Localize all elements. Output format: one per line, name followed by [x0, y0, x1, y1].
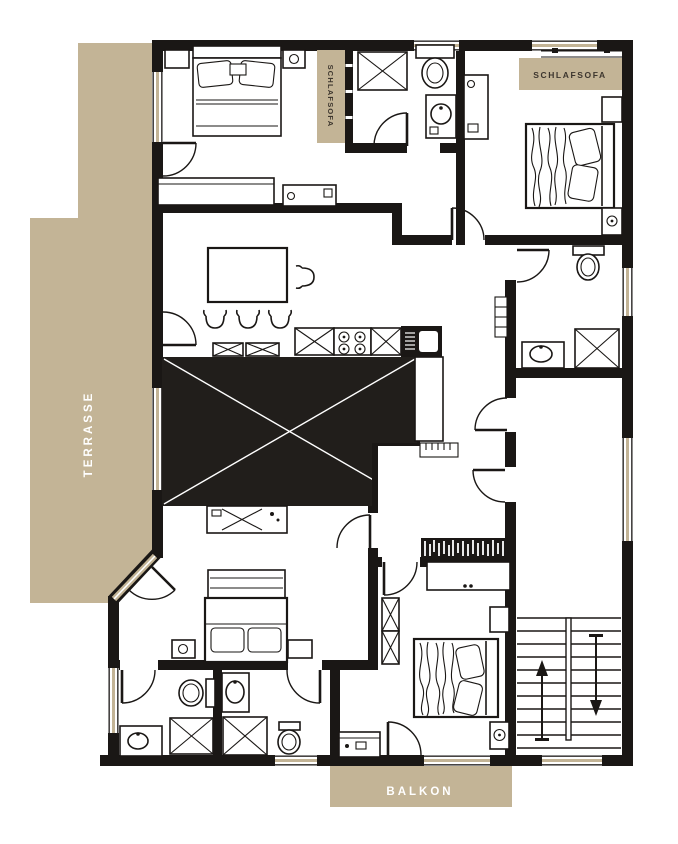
bathroom-bottom-left-2: [222, 673, 300, 755]
toilet: [416, 45, 454, 88]
stool: [213, 343, 243, 356]
door-hall-room-right: [475, 398, 507, 430]
window: [152, 388, 163, 490]
wardrobe: [382, 598, 399, 664]
stairs-down-arrow-icon: [589, 634, 603, 716]
terrace-area: [30, 43, 152, 603]
door-terrace-living: [163, 312, 196, 345]
nightstand: [602, 208, 622, 235]
kitchen-cabinet: [295, 328, 334, 355]
sink-vanity: [120, 726, 162, 756]
kitchen-cabinet: [371, 328, 401, 355]
dresser: [208, 570, 285, 598]
terrace-label: TERRASSE: [83, 391, 95, 478]
sleepsofa-horizontal-label: SCHLAFSOFA: [533, 70, 607, 80]
nightstand: [283, 50, 305, 68]
window: [532, 40, 597, 51]
balcony-label: BALKON: [386, 786, 453, 798]
sleepsofa-vertical-label: SCHLAFSOFA: [326, 65, 335, 128]
bathroom-mid-right: [522, 246, 619, 368]
chair-icon: [204, 310, 227, 328]
double-bed: [205, 598, 287, 662]
door-bathroom-mid-right: [517, 250, 549, 282]
staircase: [517, 618, 621, 748]
counter-peninsula: [415, 357, 443, 441]
closet: [427, 562, 510, 590]
nightstand: [172, 640, 195, 658]
sleepsofa-horizontal: SCHLAFSOFA: [519, 48, 622, 90]
shower: [223, 717, 267, 755]
door-bathroom-bottom-right: [287, 670, 320, 703]
sleepsofa-vertical: SCHLAFSOFA: [317, 50, 345, 143]
bedroom-top-right: SCHLAFSOFA: [464, 48, 622, 235]
cooktop: [334, 328, 371, 355]
sideboard: [339, 732, 380, 757]
nightstand: [288, 640, 312, 658]
nightstand: [165, 50, 189, 68]
desk: [464, 75, 488, 139]
nightstand: [490, 607, 509, 632]
wardrobe: [158, 178, 274, 205]
wall-right: [622, 40, 633, 766]
sink-vanity: [222, 673, 249, 712]
floor-plan: TERRASSE BALKON: [0, 0, 678, 844]
door-bedroom-bottom-right: [384, 562, 417, 595]
bedroom-mid-left: [172, 506, 312, 662]
window: [424, 755, 490, 766]
window: [108, 668, 119, 733]
desk: [283, 185, 336, 206]
toilet: [278, 722, 300, 754]
door-bathroom-top: [374, 113, 407, 146]
hallway: [495, 297, 507, 337]
stair-divider: [566, 618, 571, 740]
door-bedroom-mid-left: [337, 515, 370, 548]
bathroom-bottom-left-1: [120, 679, 215, 756]
window: [152, 72, 163, 142]
double-bed: [414, 639, 498, 717]
window: [622, 268, 633, 316]
window: [622, 438, 633, 541]
sink-vanity: [522, 342, 564, 368]
double-bed: [526, 124, 614, 208]
window: [275, 755, 317, 766]
door-balcony: [388, 722, 421, 755]
chair-icon: [237, 310, 260, 328]
kitchen: [295, 326, 442, 357]
toilet: [179, 679, 215, 707]
window: [542, 755, 602, 766]
bedroom-bottom-right: [339, 562, 510, 757]
floor-plan-page: TERRASSE BALKON: [0, 0, 678, 844]
double-bed: [193, 46, 281, 136]
shower: [170, 718, 213, 754]
dining-table: [208, 248, 287, 302]
bookshelf: [421, 538, 511, 558]
radiator: [420, 443, 458, 457]
chair-icon: [296, 266, 314, 289]
toilet: [573, 246, 604, 280]
door-bathroom-bottom-left: [122, 670, 155, 703]
door-terrace-bedroom: [163, 143, 196, 176]
nightstand: [490, 722, 509, 749]
desk-with-chair: [207, 506, 287, 533]
door-storage-room: [473, 470, 505, 502]
stairs-up-arrow-icon: [535, 660, 549, 741]
shower: [358, 52, 407, 90]
radiator: [495, 297, 507, 337]
chair-icon: [269, 310, 292, 328]
shower: [575, 329, 619, 368]
void-shaft: [162, 357, 443, 506]
sink-vanity: [426, 95, 456, 138]
kitchen-sink: [401, 326, 442, 357]
bedroom-top-left: SCHLAFSOFA: [158, 46, 345, 206]
nightstand: [602, 97, 622, 122]
stool: [246, 343, 279, 356]
